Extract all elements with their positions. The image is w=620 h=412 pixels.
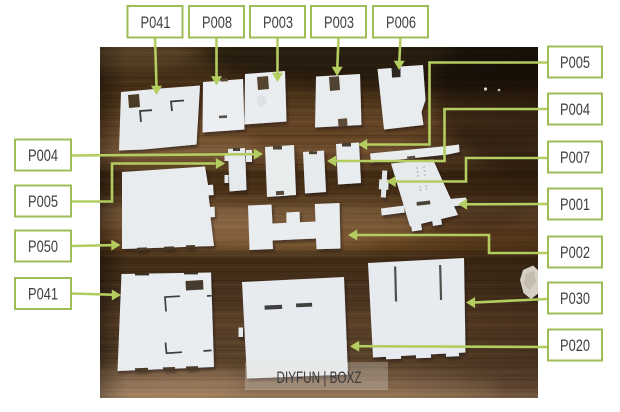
svg-text:P005: P005: [28, 193, 58, 211]
svg-text:P020: P020: [560, 337, 590, 355]
svg-text:P002: P002: [560, 244, 590, 262]
svg-text:P003: P003: [324, 14, 354, 32]
svg-text:P006: P006: [386, 14, 416, 32]
svg-text:P041: P041: [141, 14, 171, 32]
svg-text:P007: P007: [560, 149, 590, 167]
svg-text:P001: P001: [560, 196, 590, 214]
svg-text:P041: P041: [28, 286, 58, 304]
svg-text:P003: P003: [263, 14, 293, 32]
svg-text:P004: P004: [28, 147, 58, 165]
svg-text:DIYFUN | BOXZ: DIYFUN | BOXZ: [277, 369, 362, 387]
svg-text:P030: P030: [560, 290, 590, 308]
svg-text:P005: P005: [560, 54, 590, 72]
svg-text:P008: P008: [202, 14, 232, 32]
svg-text:P004: P004: [560, 101, 590, 119]
svg-text:P050: P050: [28, 238, 58, 256]
